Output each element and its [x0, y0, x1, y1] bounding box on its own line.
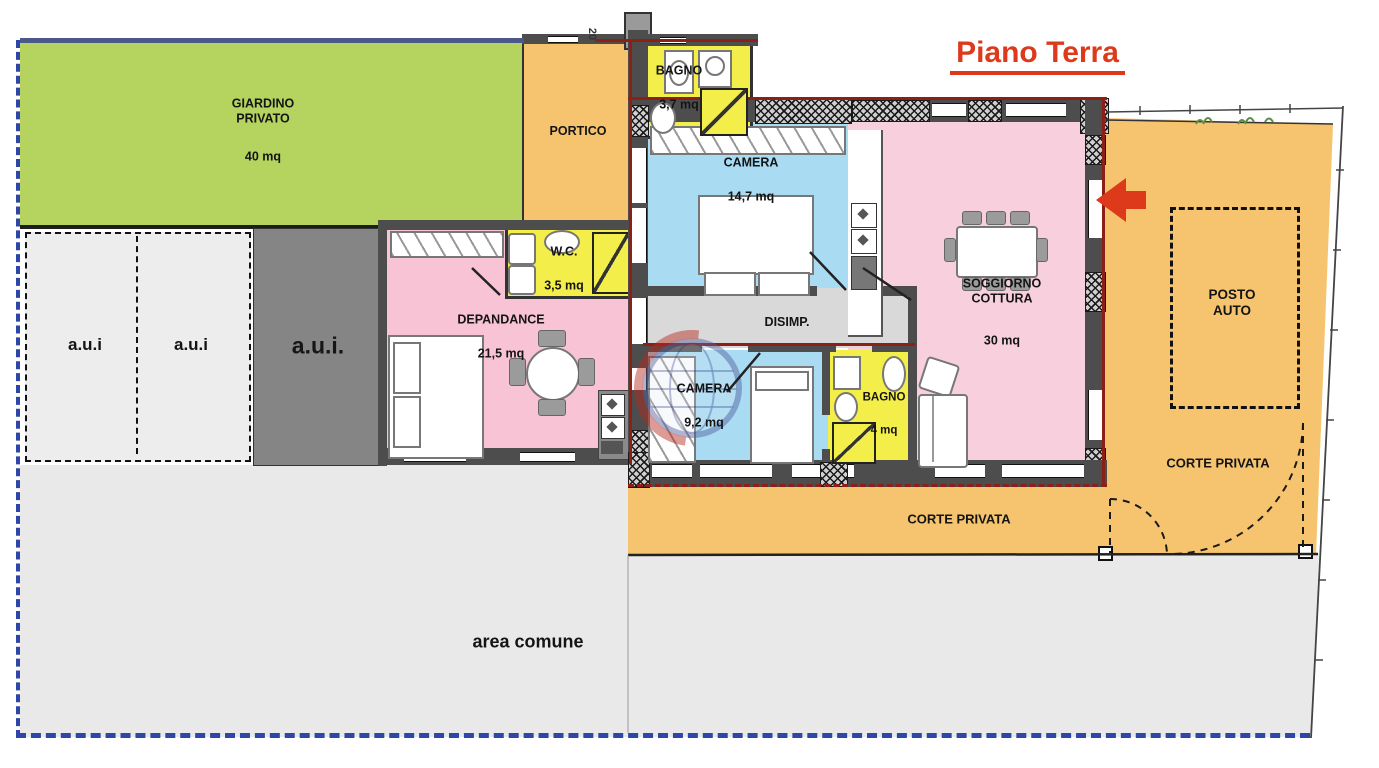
- room-name: CORTE PRIVATA: [907, 511, 1010, 527]
- pillow-icon: [393, 396, 421, 448]
- room-area: 14,7 mq: [724, 190, 779, 205]
- pillow-icon: [758, 272, 810, 296]
- shower-icon: [592, 232, 630, 294]
- site-top-border: [20, 38, 524, 43]
- wall-pillar: [629, 105, 649, 137]
- chair-icon: [538, 399, 566, 416]
- room-name: GIARDINO PRIVATO: [232, 96, 295, 127]
- corte-privata-bottom-region: [628, 487, 1107, 555]
- bidet-icon: [508, 265, 536, 295]
- chair-icon: [578, 358, 595, 386]
- pillow-icon: [755, 371, 809, 391]
- room-area: 30 mq: [963, 333, 1041, 348]
- unit-bottom-window: [652, 464, 692, 478]
- room-name: POSTO AUTO: [1208, 287, 1255, 320]
- room-name: DISIMP.: [765, 314, 810, 329]
- bagno2-label: BAGNO 4 mq: [863, 371, 906, 458]
- corte-privata-right-label: CORTE PRIVATA: [1166, 436, 1269, 491]
- portico-label: PORTICO: [550, 104, 607, 158]
- aui-left-label: a.u.i: [68, 315, 102, 375]
- sink-unit-icon: [601, 441, 623, 454]
- camera2-label: CAMERA 9,2 mq: [677, 361, 732, 450]
- shower-icon: [700, 88, 748, 136]
- bagno2-right-wall: [908, 286, 917, 467]
- posto-auto-label: POSTO AUTO: [1208, 267, 1255, 339]
- room-name: BAGNO: [863, 390, 906, 404]
- room-name: W.C.: [544, 244, 584, 259]
- depandance-top-wall: [383, 220, 632, 230]
- wardrobe-icon: [390, 231, 504, 258]
- wall-pillar: [968, 100, 1002, 122]
- bagno1-label: BAGNO 3,7 mq: [656, 43, 703, 132]
- room-name: CORTE PRIVATA: [1166, 455, 1269, 471]
- room-name: a.u.i: [174, 335, 208, 356]
- room-name: CAMERA: [677, 381, 732, 396]
- oven-icon: [851, 256, 877, 290]
- depandance-left-wall: [378, 220, 387, 466]
- sofa-icon: [918, 394, 968, 468]
- unit-bottom-window: [700, 464, 772, 478]
- camera1-label: CAMERA 14,7 mq: [724, 135, 779, 224]
- portico-top-window: [548, 36, 578, 43]
- gate-post: [1098, 546, 1113, 561]
- room-name: a.u.i.: [292, 331, 344, 359]
- chair-icon: [986, 211, 1006, 225]
- chair-icon: [962, 211, 982, 225]
- site-left-border-dashed: [16, 40, 20, 738]
- toilet-icon: [508, 233, 536, 265]
- soggiorno-label: SOGGIORNO COTTURA 30 mq: [963, 256, 1041, 367]
- area-comune-label: area comune: [472, 612, 583, 673]
- room-name: DEPANDANCE: [457, 312, 544, 327]
- gate-post: [1298, 544, 1313, 559]
- room-area: 4 mq: [863, 424, 906, 438]
- aui-dark-label: a.u.i.: [292, 311, 344, 378]
- room-area: 3,5 mq: [544, 279, 584, 294]
- aui-divider: [136, 236, 138, 454]
- unit-top-window: [932, 103, 966, 117]
- sink-icon: [833, 356, 861, 390]
- aui-light-region: [25, 232, 251, 462]
- room-name: CAMERA: [724, 155, 779, 170]
- giardino-label: GIARDINO PRIVATO 40 mq: [232, 76, 295, 183]
- sofa-back-line: [932, 396, 934, 462]
- room-name: area comune: [472, 631, 583, 653]
- chair-icon: [944, 238, 956, 262]
- property-line: [629, 40, 632, 464]
- unit-top-window: [1006, 103, 1066, 117]
- room-area: 40 mq: [232, 149, 295, 164]
- site-bottom-border-dashed: [16, 733, 1310, 738]
- page-title: Piano Terra: [950, 36, 1125, 75]
- location-arrow-tail: [1124, 191, 1146, 209]
- depandance-label: DEPANDANCE 21,5 mq: [457, 292, 544, 381]
- unit-left-window: [631, 208, 647, 263]
- wall-pillar: [755, 98, 852, 124]
- room-area: 3,7 mq: [656, 98, 703, 113]
- camera2-bagno2-wall: [822, 350, 830, 415]
- floor-plan: GIARDINO PRIVATO 40 mq PORTICO BAGNO 3,7…: [0, 0, 1379, 768]
- property-line-dashed: [628, 484, 1107, 487]
- location-arrow-icon: [1096, 178, 1126, 222]
- toilet-icon: [834, 392, 858, 422]
- unit-left-window: [631, 148, 647, 203]
- property-line: [1102, 98, 1105, 487]
- room-area: 21,5 mq: [457, 347, 544, 362]
- room-name: BAGNO: [656, 63, 703, 78]
- room-area: 9,2 mq: [677, 416, 732, 431]
- pillow-icon: [393, 342, 421, 394]
- washer-drum-icon: [705, 56, 725, 76]
- room-name: PORTICO: [550, 123, 607, 138]
- dimension-mark: 20: [586, 28, 598, 40]
- room-name: a.u.i: [68, 335, 102, 356]
- unit-bottom-window: [1002, 464, 1084, 478]
- chair-icon: [1010, 211, 1030, 225]
- corte-privata-bottom-label: CORTE PRIVATA: [907, 492, 1010, 547]
- depandance-window: [520, 452, 575, 462]
- pillow-icon: [704, 272, 756, 296]
- wc-label: W.C. 3,5 mq: [544, 224, 584, 313]
- property-line: [595, 39, 758, 42]
- room-name: SOGGIORNO COTTURA: [963, 276, 1041, 307]
- wall-pillar: [852, 100, 930, 122]
- aui-middle-label: a.u.i: [174, 315, 208, 375]
- disimpegno-label: DISIMP.: [765, 295, 810, 349]
